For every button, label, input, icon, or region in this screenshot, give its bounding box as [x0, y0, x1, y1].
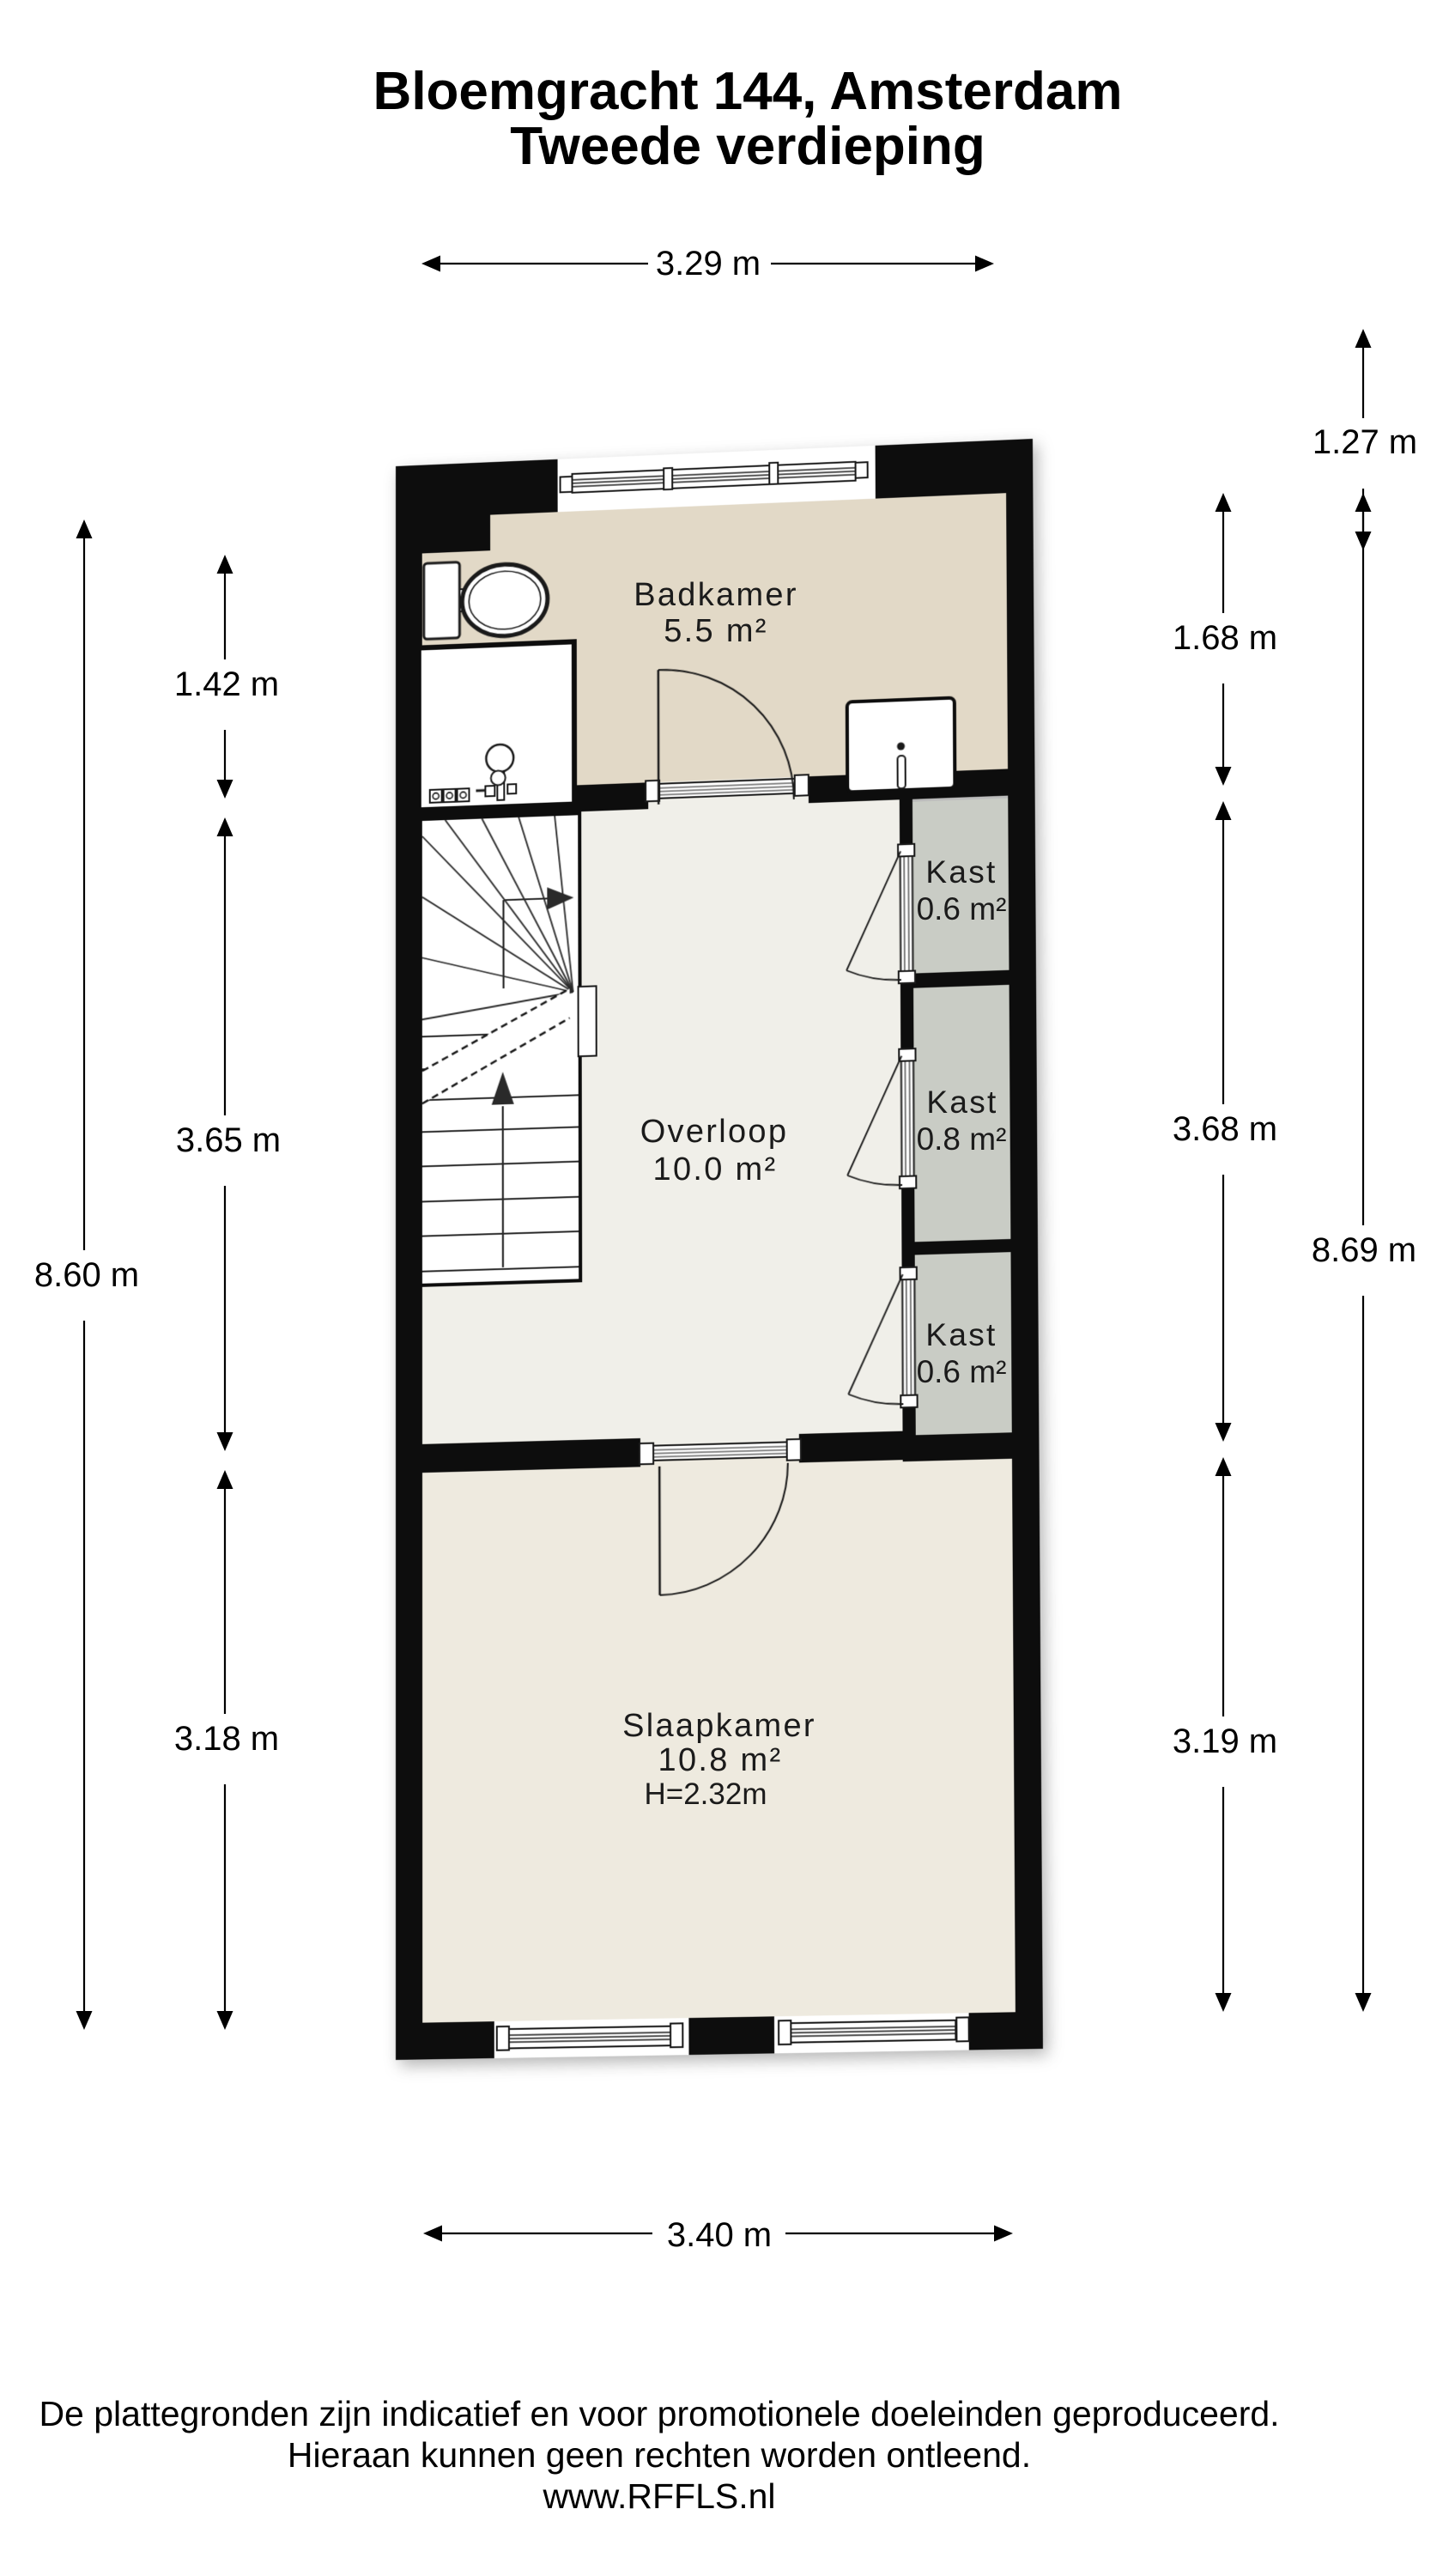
svg-text:Bloemgracht 144, Amsterdam: Bloemgracht 144, Amsterdam: [373, 62, 1123, 121]
svg-text:1.42 m: 1.42 m: [174, 665, 279, 703]
svg-text:3.18 m: 3.18 m: [174, 1720, 279, 1758]
svg-text:Hieraan kunnen geen rechten wo: Hieraan kunnen geen rechten worden ontle…: [288, 2435, 1031, 2475]
svg-text:8.60 m: 8.60 m: [34, 1256, 139, 1294]
svg-text:0.8 m²: 0.8 m²: [917, 1121, 1007, 1157]
svg-text:3.29 m: 3.29 m: [656, 245, 761, 283]
svg-text:Kast: Kast: [926, 1084, 997, 1120]
svg-text:Overloop: Overloop: [640, 1114, 789, 1150]
svg-text:Kast: Kast: [925, 854, 997, 890]
svg-text:0.6 m²: 0.6 m²: [917, 891, 1007, 927]
svg-text:3.40 m: 3.40 m: [667, 2216, 772, 2254]
svg-text:www.RFFLS.nl: www.RFFLS.nl: [542, 2476, 775, 2516]
svg-text:3.68 m: 3.68 m: [1173, 1110, 1277, 1148]
svg-text:De plattegronden zijn indicati: De plattegronden zijn indicatief en voor…: [39, 2394, 1279, 2433]
svg-text:0.6 m²: 0.6 m²: [917, 1354, 1007, 1389]
svg-text:Slaapkamer: Slaapkamer: [622, 1708, 816, 1744]
svg-text:Tweede verdieping: Tweede verdieping: [510, 117, 985, 176]
svg-text:1.27 m: 1.27 m: [1313, 423, 1417, 461]
svg-text:1.68 m: 1.68 m: [1173, 619, 1277, 657]
svg-text:5.5 m²: 5.5 m²: [664, 613, 768, 649]
svg-text:Badkamer: Badkamer: [634, 577, 798, 613]
svg-text:10.8 m²: 10.8 m²: [658, 1742, 783, 1778]
svg-text:10.0 m²: 10.0 m²: [653, 1151, 778, 1188]
svg-text:8.69 m: 8.69 m: [1312, 1231, 1416, 1269]
svg-text:H=2.32m: H=2.32m: [645, 1777, 767, 1811]
svg-text:3.19 m: 3.19 m: [1173, 1722, 1277, 1760]
svg-text:3.65 m: 3.65 m: [176, 1121, 281, 1159]
svg-text:Kast: Kast: [925, 1317, 997, 1352]
